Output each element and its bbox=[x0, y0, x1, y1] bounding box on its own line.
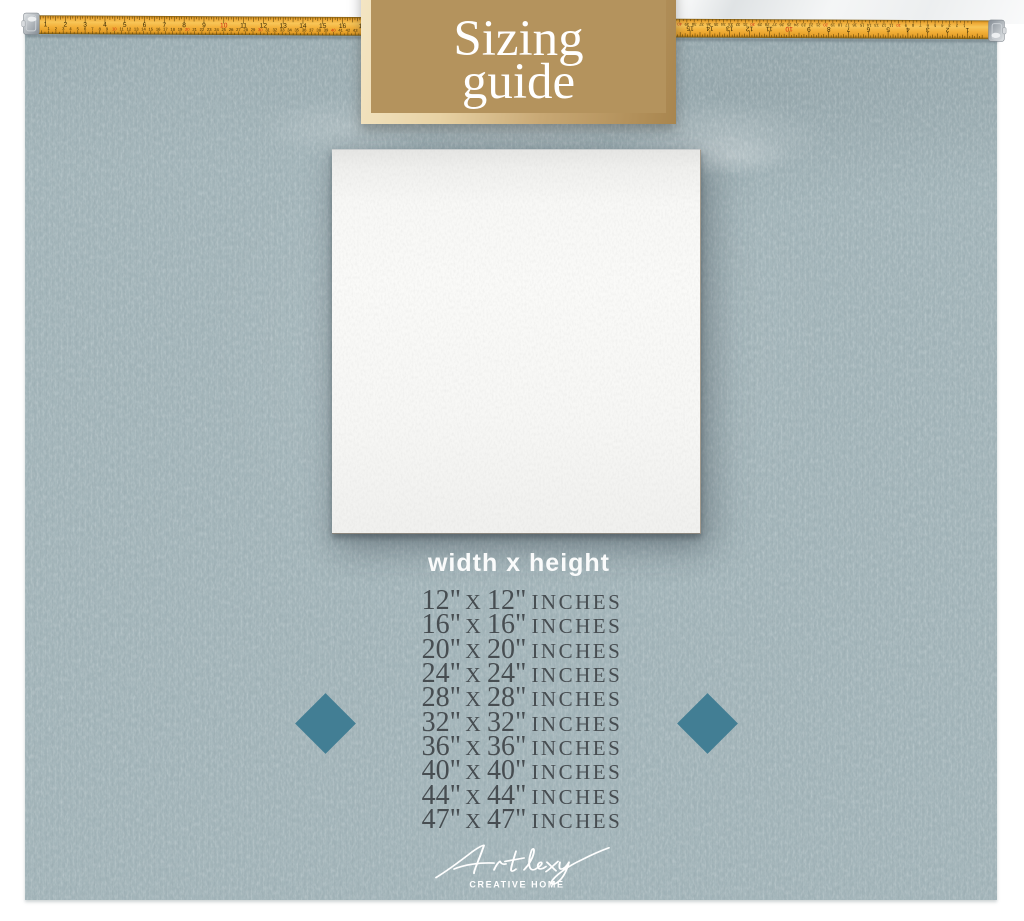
svg-text:23: 23 bbox=[801, 22, 806, 27]
svg-text:20: 20 bbox=[823, 23, 828, 28]
svg-text:16: 16 bbox=[156, 27, 161, 32]
svg-text:24: 24 bbox=[793, 22, 798, 27]
svg-text:35: 35 bbox=[295, 27, 300, 32]
svg-text:31: 31 bbox=[265, 27, 270, 32]
svg-text:14: 14 bbox=[141, 27, 146, 32]
svg-text:11: 11 bbox=[119, 26, 124, 31]
svg-text:39: 39 bbox=[684, 22, 689, 27]
svg-text:35: 35 bbox=[713, 22, 718, 27]
svg-text:40: 40 bbox=[331, 28, 336, 33]
svg-text:21: 21 bbox=[192, 27, 197, 32]
svg-text:10: 10 bbox=[112, 26, 117, 31]
svg-text:37: 37 bbox=[309, 27, 314, 32]
svg-text:30: 30 bbox=[750, 22, 755, 27]
svg-text:12: 12 bbox=[881, 23, 886, 28]
svg-text:27: 27 bbox=[236, 27, 241, 32]
svg-text:30: 30 bbox=[258, 27, 263, 32]
svg-text:38: 38 bbox=[316, 28, 321, 33]
svg-text:34: 34 bbox=[720, 22, 725, 27]
svg-text:29: 29 bbox=[251, 27, 256, 32]
svg-text:24: 24 bbox=[214, 27, 219, 32]
svg-text:42: 42 bbox=[346, 28, 351, 33]
svg-text:36: 36 bbox=[302, 27, 307, 32]
svg-text:14: 14 bbox=[866, 23, 871, 28]
svg-text:CREATIVE HOME: CREATIVE HOME bbox=[469, 880, 564, 890]
svg-text:22: 22 bbox=[200, 27, 205, 32]
svg-text:38: 38 bbox=[691, 22, 696, 27]
svg-text:19: 19 bbox=[830, 23, 835, 28]
svg-text:40: 40 bbox=[677, 22, 682, 27]
svg-text:20: 20 bbox=[185, 27, 190, 32]
svg-text:15: 15 bbox=[859, 23, 864, 28]
svg-text:21: 21 bbox=[815, 23, 820, 28]
svg-text:33: 33 bbox=[280, 27, 285, 32]
svg-text:18: 18 bbox=[170, 27, 175, 32]
svg-text:26: 26 bbox=[229, 27, 234, 32]
svg-text:18: 18 bbox=[837, 23, 842, 28]
svg-text:32: 32 bbox=[735, 22, 740, 27]
svg-text:31: 31 bbox=[742, 22, 747, 27]
svg-text:10: 10 bbox=[896, 23, 901, 28]
svg-text:25: 25 bbox=[222, 27, 227, 32]
svg-text:15: 15 bbox=[149, 27, 154, 32]
svg-text:33: 33 bbox=[728, 22, 733, 27]
svg-text:37: 37 bbox=[698, 22, 703, 27]
svg-text:25: 25 bbox=[786, 22, 791, 27]
svg-text:43: 43 bbox=[353, 28, 358, 33]
svg-text:34: 34 bbox=[287, 27, 292, 32]
svg-text:23: 23 bbox=[207, 27, 212, 32]
svg-text:19: 19 bbox=[178, 27, 183, 32]
svg-text:16: 16 bbox=[852, 23, 857, 28]
svg-text:17: 17 bbox=[844, 23, 849, 28]
svg-text:27: 27 bbox=[771, 22, 776, 27]
svg-text:28: 28 bbox=[243, 27, 248, 32]
svg-text:11: 11 bbox=[888, 23, 893, 28]
svg-text:13: 13 bbox=[874, 23, 879, 28]
svg-text:12: 12 bbox=[127, 26, 132, 31]
svg-text:17: 17 bbox=[163, 27, 168, 32]
svg-text:41: 41 bbox=[338, 28, 343, 33]
svg-text:29: 29 bbox=[757, 22, 762, 27]
svg-text:26: 26 bbox=[779, 22, 784, 27]
svg-text:36: 36 bbox=[706, 22, 711, 27]
svg-text:28: 28 bbox=[764, 22, 769, 27]
svg-text:22: 22 bbox=[808, 22, 813, 27]
svg-text:32: 32 bbox=[273, 27, 278, 32]
svg-text:39: 39 bbox=[324, 28, 329, 33]
svg-text:13: 13 bbox=[134, 27, 139, 32]
